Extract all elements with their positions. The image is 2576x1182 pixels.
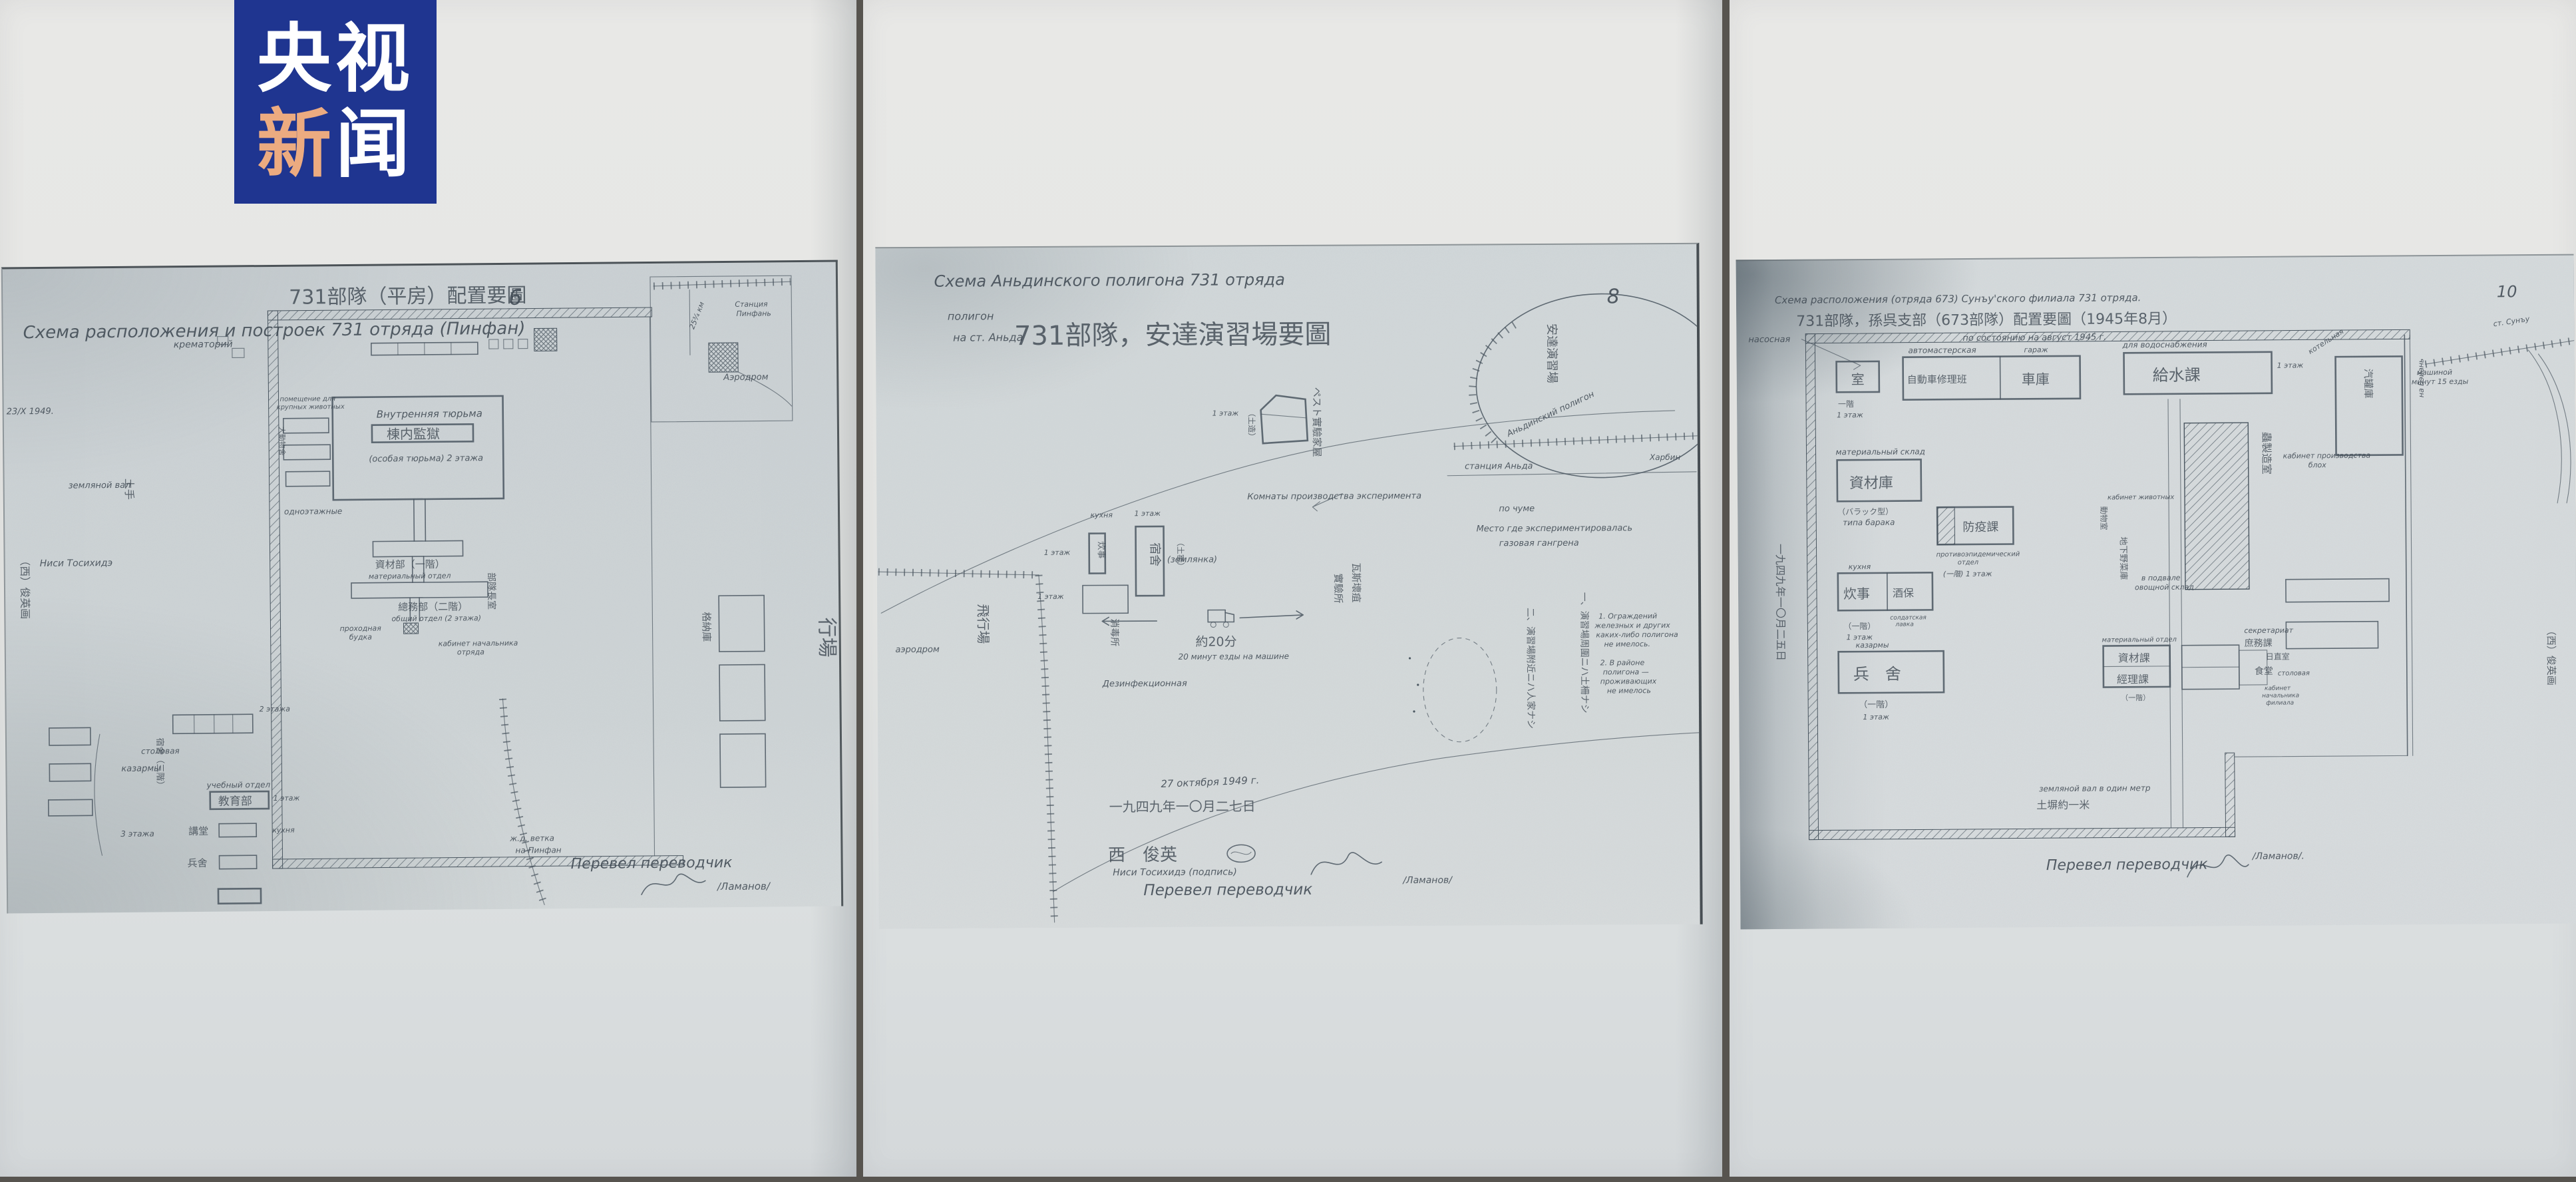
map1-floors2: 2 этажа <box>260 705 291 713</box>
map2-note1-ru-b: железных и других <box>1594 621 1670 630</box>
map2-note1-ru-c: каких-либо полигона <box>1596 630 1678 640</box>
map1-page-number: 6 <box>508 285 522 310</box>
map1-kitchen: кухня <box>272 826 295 835</box>
map3-store-cjk: 資材庫 <box>1849 475 1893 492</box>
map3-lamanov: /Ламанов/. <box>2251 851 2304 862</box>
map2-note2-ru-d: не имелось <box>1607 686 1651 695</box>
map3-bar-ru1: солдатская <box>1890 614 1927 621</box>
map3-title-cjk: 731部隊，孫呉支部（673部隊）配置要圖（1945年8月） <box>1796 311 2177 330</box>
cctv-news-logo: 央视 新闻 <box>234 0 437 204</box>
photocopy-sunwu-map: Схема расположения (отряда 673) Сунъу'ск… <box>1736 254 2576 930</box>
map1-edu-floor: 1 этаж <box>274 794 300 803</box>
map2-note2-ru-a: 2. В районе <box>1600 658 1645 667</box>
map3-page-number: 10 <box>2497 282 2517 301</box>
map2-title-cjk: 731部隊，安達演習場要圖 <box>1014 319 1332 351</box>
map3-flea-cjk: 蟲製造室 <box>2260 432 2273 475</box>
paper-sheet-right: Схема расположения (отряда 673) Сунъу'ск… <box>1730 0 2576 1177</box>
map3-material2-floor: （一階） <box>2121 693 2150 702</box>
map3-water-floor: 1 этаж <box>2277 361 2304 369</box>
map2-rooms-line2: по чуме <box>1499 504 1535 514</box>
map2-range-cjk: 安達演習場 <box>1545 323 1559 383</box>
map1-edu-ru: учебный отдел <box>206 780 271 790</box>
map3-garage-ru: гараж <box>2024 345 2048 354</box>
map1-nisi-name: Ниси Тосихидэ <box>40 558 113 569</box>
map3-cellar-ru2: овощной склад <box>2135 583 2194 592</box>
map1-material-cjk: 資材部（一階） <box>375 558 445 571</box>
map3-wall-cjk: 土塀約一米 <box>2036 799 2090 812</box>
logo-char-wen: 闻 <box>335 102 414 186</box>
map3-kitchen-floor-cjk: （一階） <box>1843 621 1875 631</box>
map3-store-type-cjk: （バラック型） <box>1837 507 1893 517</box>
map1-earth-wall-ru: земляной вал <box>69 481 131 491</box>
map1-chief-line1: кабинет начальника <box>439 639 518 648</box>
map3-title-ru: Схема расположения (отряда 673) Сунъу'ск… <box>1775 292 2141 306</box>
map3-bar-ru2: лавка <box>1895 622 1914 628</box>
map1-title-cjk: 731部隊（平房）配置要圖 <box>289 284 527 309</box>
logo-char-xin: 新 <box>257 102 335 186</box>
map1-railbranch-line1: ж.д. ветка <box>509 833 554 843</box>
map1-earth-wall-cjk: 土手 <box>123 479 136 500</box>
map3-drive-line2: минут 15 езды <box>2412 377 2469 387</box>
map3-material2-cjk: 資材課 <box>2118 652 2150 664</box>
map1-prison-cjk: 棟内監獄 <box>387 426 440 443</box>
map3-secretariat-cjk: 庶務課 <box>2244 638 2272 649</box>
map2-gas-line1: Место где экспериментировалась <box>1477 523 1633 534</box>
map2-title-ru: Схема Аньдинского полигона 731 отряда <box>934 270 1285 291</box>
map3-water-ru: для водоснабжения <box>2121 339 2207 349</box>
map2-date-cjk: 一九四九年一〇月二七日 <box>1109 798 1256 815</box>
photocopy-anda-map: Схема Аньдинского полигона 731 отряда по… <box>875 243 1702 928</box>
map2-kitchen-cjk: 炊事 <box>1096 541 1106 558</box>
map3-duty-cjk: 日直室 <box>2266 652 2290 662</box>
map3-bar-cjk: 酒保 <box>1893 587 1914 600</box>
map3-barracks-cjk: 兵 舍 <box>1853 665 1901 684</box>
map2-page-number: 8 <box>1607 285 1620 308</box>
map2-sub2: на ст. Аньда <box>953 331 1023 344</box>
logo-line1: 央视 <box>257 17 414 102</box>
photocopy-pingfang-map: 731部隊（平房）配置要圖 Схема расположения и постр… <box>1 260 843 914</box>
map1-gate-line1: проходная <box>339 624 381 634</box>
map2-gas-line2: газовая гангрена <box>1499 538 1579 549</box>
map2-kitchen-floor: 1 этаж <box>1044 548 1071 557</box>
map3-flea-ru2: блох <box>2308 461 2327 469</box>
map3-cellar-cjk: 地下野菜庫 <box>2117 536 2127 580</box>
map3-animals-cjk: 動物室 <box>2099 506 2109 530</box>
map1-prison-floors: 2 этажа <box>447 453 483 463</box>
map3-chief-ru3: филиала <box>2266 700 2294 707</box>
map3-epid-ru2: отдел <box>1958 559 1979 566</box>
map3-guard-floor-cjk: 一階 <box>1838 399 1854 409</box>
map2-plague-house-cjk: ペスト實驗家屋 <box>1310 387 1323 457</box>
map1-prison-ru: Внутренняя тюрьма <box>377 407 482 420</box>
map1-airfield-cjk: 行場 <box>815 618 838 658</box>
map2-disinf-ru: Дезинфекционная <box>1102 679 1187 689</box>
map2-harbin: Харбин <box>1649 453 1680 462</box>
map2-dugout-ru: (землянка) <box>1167 555 1217 565</box>
map3-material2-ru: материальный отдел <box>2102 636 2177 644</box>
map3-epid-ru1: противоэпидемический <box>1936 550 2020 558</box>
map2-signature-cjk: 西 俊英 <box>1108 845 1177 866</box>
map3-chief-ru1: кабинет <box>2265 686 2291 692</box>
pingfang-map-svg: 731部隊（平房）配置要圖 Схема расположения и постр… <box>3 262 841 914</box>
map1-crematorium: крематорий <box>174 339 233 350</box>
map1-barracks2-cjk: 兵舍 <box>188 857 208 869</box>
map1-dining: столовая <box>141 746 180 756</box>
map1-barracks: казармы <box>121 763 160 774</box>
map3-barracks-floor-ru: 1 этаж <box>1863 713 1889 721</box>
map3-boiler-cjk: 汽罐庫 <box>2362 369 2374 399</box>
map2-signature-ru: Ниси Тосихидэ (подпись) <box>1113 867 1237 878</box>
map1-translator: Перевел переводчик <box>571 855 733 873</box>
map3-auto-ru: автомастерская <box>1908 345 1976 355</box>
map2-drive-cjk: 約20分 <box>1195 634 1236 649</box>
map3-pump: насосная <box>1748 335 1790 345</box>
map2-note1-cjk: 一、演習場周圍ニハ土柵ナシ <box>1578 592 1590 713</box>
map2-rooms-line1: Комнаты производства эксперимента <box>1247 491 1421 502</box>
map1-hangar-cjk: 格納庫 <box>700 612 712 642</box>
sunwu-map-svg: Схема расположения (отряда 673) Сунъу'ск… <box>1736 256 2576 930</box>
map2-note2-cjk: 二、演習場附近ニハ人家ナシ <box>1525 608 1537 729</box>
map3-asof: по состоянию на август 1945 г. <box>1962 333 2106 344</box>
map2-dorm-cjk: 宿舍 <box>1148 542 1162 566</box>
map1-one-story: одноэтажные <box>284 506 342 516</box>
map2-note1-ru-d: не имелось. <box>1604 640 1650 648</box>
map3-kitchen-cjk: 炊事 <box>1843 586 1870 602</box>
map1-railbranch-line2: на Пинфан <box>515 845 561 855</box>
page-root: { "colors":{"logo_bg":"#1f3590","logo_ac… <box>0 0 2576 1182</box>
map1-material-ru: материальный отдел <box>369 572 451 581</box>
map3-store-type-ru: типа барака <box>1843 518 1895 528</box>
map3-date-vertical-cjk: 一九四九年一〇月二五日 <box>1773 544 1787 661</box>
map1-station-line1: Станция <box>735 299 768 308</box>
map2-airfield-cjk: 飛行場 <box>975 604 991 644</box>
anda-map-svg: Схема Аньдинского полигона 731 отряда по… <box>875 244 1700 928</box>
map3-chief-ru2: начальника <box>2262 693 2299 699</box>
map3-store-ru: материальный склад <box>1835 447 1925 457</box>
map1-edu-cjk: 教育部 <box>218 795 252 808</box>
map3-drive-line1: машиной <box>2417 368 2452 377</box>
map2-note2-ru-b: полигона — <box>1603 668 1649 676</box>
map3-flea-ru1: кабинет производства <box>2283 451 2371 461</box>
map2-bld-floor: 1 этаж <box>1037 592 1064 601</box>
map1-animals-label2: крупных животных <box>277 403 345 411</box>
map2-sub1: полигон <box>948 309 994 322</box>
map3-kitchen-ru: кухня <box>1849 562 1871 571</box>
map3-auto-cjk: 自動車修理班 <box>1907 373 1967 386</box>
map1-aerodrome: Аэродром <box>723 372 769 383</box>
map1-hall-cjk: 講堂 <box>188 825 208 837</box>
map1-gate-line2: будка <box>349 633 373 642</box>
map2-gas-cjk2: 實驗所 <box>1332 574 1344 604</box>
map3-cellar-ru1: в подвале <box>2141 574 2181 582</box>
map2-lamanov: /Ламанов/ <box>1401 875 1453 886</box>
logo-line2: 新闻 <box>257 102 414 187</box>
map1-west-signature-cjk: （西）俊英画 <box>19 555 32 619</box>
map3-epid-cjk: 防疫課 <box>1962 520 1998 534</box>
map3-secretariat-ru: секретариат <box>2244 626 2293 636</box>
map2-note1-ru-a: 1. Ограждений <box>1598 612 1657 620</box>
map3-west-signature-cjk: （西）俊英画 <box>2545 626 2557 686</box>
map3-water-cjk: 給水課 <box>2153 366 2201 385</box>
map2-dorm-floor: 1 этаж <box>1134 509 1161 518</box>
map1-animals-cjk: 大動物舍 <box>277 427 287 456</box>
map1-animals-label1: помещение для <box>279 395 335 403</box>
map2-translator: Перевел переводчик <box>1143 881 1312 899</box>
map1-lamanov: /Ламанов/ <box>716 880 771 892</box>
map2-house-mud-cjk: （土造） <box>1247 409 1256 441</box>
map3-wall-ru: земляной вал в один метр <box>2039 783 2151 793</box>
map1-general-ru: общий отдел (2 этажа) <box>391 614 481 623</box>
map2-drive-ru: 20 минут езды на машине <box>1179 652 1290 662</box>
map3-guard-floor-ru: 1 этаж <box>1837 411 1863 419</box>
map3-garage-cjk: 車庫 <box>2022 371 2050 387</box>
paper-sheet-middle: Схема Аньдинского полигона 731 отряда по… <box>863 0 1722 1177</box>
map2-house-floor: 1 этаж <box>1212 409 1239 417</box>
map2-aerodrome: аэродром <box>895 645 940 655</box>
map3-barracks-floor-cjk: （一階） <box>1859 700 1893 710</box>
map2-note2-ru-c: проживающих <box>1600 677 1657 686</box>
map3-animals-ru: кабинет животных <box>2108 493 2174 502</box>
map1-floors3: 3 этажа <box>120 829 154 839</box>
map3-finance-cjk: 經理課 <box>2117 673 2149 686</box>
map2-disinf-cjk: 消毒所 <box>1109 618 1119 646</box>
map3-dining-ru: столовая <box>2278 670 2310 677</box>
map3-barracks-ru: казармы <box>1856 641 1889 650</box>
map2-kitchen-ru: кухня <box>1090 510 1113 519</box>
map2-gas-cjk1: 瓦斯壞疽 <box>1350 562 1362 602</box>
map1-chief-line2: отряда <box>457 648 484 656</box>
map3-epid-floor: (一階) 1 этаж <box>1943 570 1992 579</box>
map1-date-note: 23/X 1949. <box>7 407 54 417</box>
map1-station-line2: Пинфань <box>736 309 771 317</box>
map1-prison-note: (особая тюрьма) <box>369 454 444 465</box>
map1-general-cjk: 總務部（二階） <box>398 600 468 613</box>
map1-chief-cjk: 部隊長室 <box>486 572 497 610</box>
map3-dining-cjk: 食堂 <box>2255 666 2273 677</box>
map3-guard-cjk: 室 <box>1851 371 1865 387</box>
map3-translator: Перевел переводчик <box>2046 856 2209 874</box>
map2-station: станция Аньда <box>1465 461 1533 472</box>
